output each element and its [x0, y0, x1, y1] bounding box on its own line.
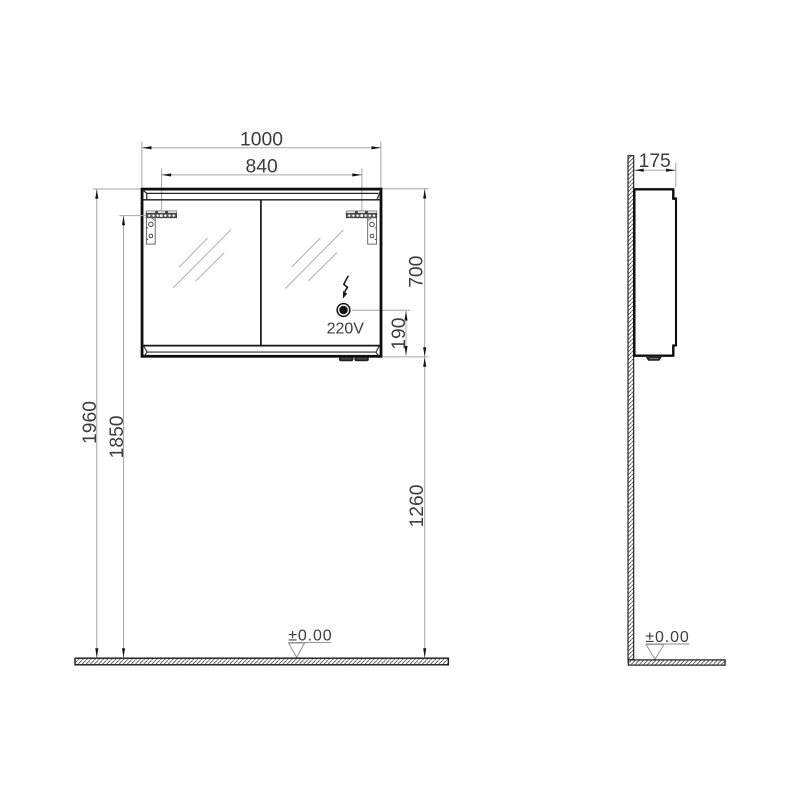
svg-text:1000: 1000: [240, 129, 283, 150]
svg-text:1850: 1850: [107, 415, 128, 458]
svg-text:220V: 220V: [327, 321, 365, 338]
svg-text:±0.00: ±0.00: [288, 628, 332, 645]
svg-text:840: 840: [246, 156, 278, 177]
svg-text:190: 190: [389, 318, 410, 350]
svg-text:1260: 1260: [407, 485, 428, 528]
svg-text:1960: 1960: [80, 401, 101, 444]
svg-text:±0.00: ±0.00: [645, 629, 689, 646]
svg-text:175: 175: [639, 151, 671, 172]
svg-text:700: 700: [406, 256, 427, 288]
